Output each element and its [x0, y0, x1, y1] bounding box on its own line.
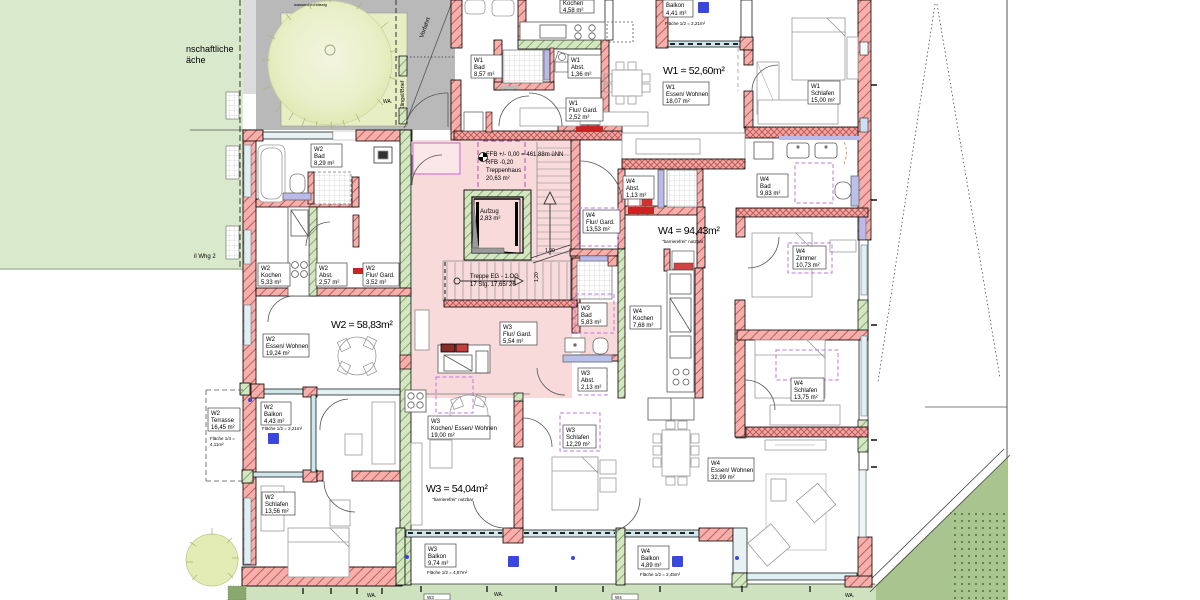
- svg-text:18,07 m²: 18,07 m²: [666, 99, 690, 105]
- svg-text:FFB +/- 0,00 = 461,88m üNN: FFB +/- 0,00 = 461,88m üNN: [486, 152, 563, 158]
- svg-text:äche: äche: [186, 55, 206, 65]
- svg-text:Bad: Bad: [314, 154, 325, 160]
- svg-text:Kochen/ Essen/ Wohnen: Kochen/ Essen/ Wohnen: [431, 426, 497, 432]
- svg-text:1,20: 1,20: [534, 272, 540, 282]
- svg-text:Balkon: Balkon: [428, 554, 446, 560]
- svg-text:Abst.: Abst.: [571, 65, 585, 71]
- svg-text:W2: W2: [265, 495, 275, 501]
- svg-text:W1: W1: [811, 84, 821, 90]
- svg-text:Balkon: Balkon: [666, 3, 684, 9]
- svg-text:W4: W4: [760, 177, 770, 183]
- svg-text:W4: W4: [586, 213, 596, 219]
- svg-text:WA.: WA.: [367, 593, 376, 599]
- svg-text:Schlafen: Schlafen: [566, 435, 589, 441]
- svg-text:2,83 m²: 2,83 m²: [480, 216, 500, 222]
- svg-text:4,58 m²: 4,58 m²: [563, 8, 583, 14]
- svg-text:Flur/ Gard.: Flur/ Gard.: [366, 273, 395, 279]
- svg-text:16,45 m²: 16,45 m²: [211, 425, 235, 431]
- svg-text:W2: W2: [366, 266, 376, 272]
- svg-text:W3: W3: [581, 306, 591, 312]
- svg-text:7,68 m²: 7,68 m²: [633, 323, 653, 329]
- svg-text:13,53 m²: 13,53 m²: [586, 227, 610, 233]
- svg-text:12,29 m²: 12,29 m²: [566, 442, 590, 448]
- svg-text:W1: W1: [571, 58, 581, 64]
- svg-text:Schlafen: Schlafen: [265, 502, 288, 508]
- svg-text:2,52 m²: 2,52 m²: [569, 115, 589, 121]
- svg-text:W1: W1: [666, 85, 676, 91]
- svg-text:Essen/ Wohnen: Essen/ Wohnen: [711, 468, 753, 474]
- svg-text:"barrierefrei" nutzbar: "barrierefrei" nutzbar: [432, 497, 474, 502]
- svg-text:WA.: WA.: [494, 592, 503, 598]
- svg-text:W2: W2: [266, 337, 276, 343]
- svg-text:Kochen: Kochen: [563, 1, 583, 7]
- svg-text:Abst.: Abst.: [581, 378, 595, 384]
- svg-text:W3: W3: [431, 419, 441, 425]
- svg-text:4,89 m²: 4,89 m²: [641, 563, 661, 569]
- svg-text:W2: W2: [261, 266, 271, 272]
- svg-text:W4: W4: [641, 549, 651, 555]
- svg-text:10,73 m²: 10,73 m²: [796, 263, 820, 269]
- svg-text:Schlafen: Schlafen: [811, 91, 834, 97]
- svg-text:1,13 m²: 1,13 m²: [626, 193, 646, 199]
- svg-text:Bad: Bad: [760, 184, 771, 190]
- svg-text:Flur/ Gard.: Flur/ Gard.: [569, 108, 598, 114]
- svg-text:Treppenhaus: Treppenhaus: [486, 168, 521, 174]
- svg-text:5,54 m²: 5,54 m²: [503, 339, 523, 345]
- svg-text:W4: W4: [794, 381, 804, 387]
- svg-text:W4 = 94,43m²: W4 = 94,43m²: [658, 225, 720, 237]
- svg-text:W4: W4: [711, 461, 721, 467]
- svg-text:W4: W4: [615, 595, 622, 600]
- svg-text:W3 = 54,04m²: W3 = 54,04m²: [426, 483, 488, 495]
- svg-text:W3: W3: [566, 428, 576, 434]
- svg-text:Bad: Bad: [581, 313, 592, 319]
- svg-text:Terrasse: Terrasse: [211, 418, 235, 424]
- svg-text:2,13 m²: 2,13 m²: [581, 385, 601, 391]
- svg-text:Fläche 1/2 = 2,45m²: Fläche 1/2 = 2,45m²: [640, 572, 681, 577]
- svg-text:9,74 m²: 9,74 m²: [428, 561, 448, 567]
- svg-text:Kochen: Kochen: [633, 316, 653, 322]
- svg-text:8,29 m²: 8,29 m²: [314, 161, 334, 167]
- svg-text:W3: W3: [427, 595, 434, 600]
- svg-text:W3: W3: [428, 547, 438, 553]
- svg-text:4,11m²: 4,11m²: [210, 442, 224, 447]
- svg-text:Flur/ Gard.: Flur/ Gard.: [586, 220, 615, 226]
- svg-text:W1 = 52,60m²: W1 = 52,60m²: [663, 65, 725, 77]
- svg-text:1,36 m²: 1,36 m²: [571, 72, 591, 78]
- svg-text:4,43 m²: 4,43 m²: [264, 419, 284, 425]
- svg-text:W4: W4: [626, 179, 636, 185]
- svg-text:13,56 m²: 13,56 m²: [265, 509, 289, 515]
- svg-text:5,33 m²: 5,33 m²: [261, 280, 281, 286]
- svg-text:W2 = 58,83m²: W2 = 58,83m²: [331, 319, 393, 331]
- svg-text:Essen/ Wohnen: Essen/ Wohnen: [266, 344, 308, 350]
- svg-text:Bad: Bad: [474, 65, 485, 71]
- svg-text:9,83 m²: 9,83 m²: [760, 191, 780, 197]
- svg-text:RFB -0,20: RFB -0,20: [486, 160, 514, 166]
- svg-text:Klingel/Brief: Klingel/Brief: [400, 80, 406, 110]
- svg-text:W1: W1: [569, 101, 579, 107]
- svg-text:Abst.: Abst.: [319, 273, 333, 279]
- svg-text:Schlafen: Schlafen: [794, 388, 817, 394]
- svg-text:"barrierefrei" nutzbar: "barrierefrei" nutzbar: [662, 239, 704, 244]
- svg-text:Fläche 1/2 = 2,21m²: Fläche 1/2 = 2,21m²: [665, 21, 706, 26]
- svg-text:Treppe EG - 1.OG: Treppe EG - 1.OG: [470, 274, 519, 280]
- svg-text:wasserdurchlässig: wasserdurchlässig: [294, 2, 327, 7]
- svg-text:Balkon: Balkon: [264, 412, 282, 418]
- svg-text:17 Stg. 17,65/ 26: 17 Stg. 17,65/ 26: [470, 282, 516, 288]
- svg-text:Zimmer: Zimmer: [796, 256, 816, 262]
- svg-text:WA.: WA.: [383, 99, 392, 105]
- svg-text:8,57 m²: 8,57 m²: [474, 72, 494, 78]
- svg-text:Flur/ Gard.: Flur/ Gard.: [503, 332, 532, 338]
- svg-text:Abst.: Abst.: [626, 186, 640, 192]
- svg-text:Fläche 1/2 = 4,87m²: Fläche 1/2 = 4,87m²: [427, 570, 468, 575]
- svg-text:4,41 m²: 4,41 m²: [666, 11, 686, 17]
- svg-text:19,24 m²: 19,24 m²: [266, 351, 290, 357]
- svg-text:W2: W2: [319, 266, 329, 272]
- svg-text:W1: W1: [474, 58, 484, 64]
- svg-text:15,00 m²: 15,00 m²: [811, 98, 835, 104]
- svg-text:Essen/ Wohnen: Essen/ Wohnen: [666, 92, 708, 98]
- svg-text:W3: W3: [581, 371, 591, 377]
- svg-text:W2: W2: [314, 147, 324, 153]
- svg-text:W3: W3: [503, 325, 513, 331]
- svg-text:W4: W4: [796, 249, 806, 255]
- svg-text:WA.: WA.: [845, 593, 854, 599]
- svg-text:il Whg 2: il Whg 2: [194, 254, 216, 260]
- svg-text:5,83 m²: 5,83 m²: [581, 320, 601, 326]
- svg-text:Fläche 1/4 =: Fläche 1/4 =: [210, 436, 235, 441]
- svg-text:W4: W4: [633, 309, 643, 315]
- svg-text:2,57 m²: 2,57 m²: [319, 280, 339, 286]
- svg-text:Fläche 1/2 = 2,21m²: Fläche 1/2 = 2,21m²: [262, 426, 303, 431]
- svg-text:Kochen: Kochen: [261, 273, 281, 279]
- svg-text:20,63 m²: 20,63 m²: [486, 176, 510, 182]
- svg-text:nschaftliche: nschaftliche: [186, 44, 234, 54]
- svg-text:W2: W2: [211, 411, 221, 417]
- svg-text:Balkon: Balkon: [641, 556, 659, 562]
- svg-text:W2: W2: [264, 405, 274, 411]
- svg-text:3,52 m²: 3,52 m²: [366, 280, 386, 286]
- svg-text:Aufzug: Aufzug: [480, 209, 499, 215]
- svg-text:13,75 m²: 13,75 m²: [794, 395, 818, 401]
- svg-text:32,99 m²: 32,99 m²: [711, 475, 735, 481]
- svg-text:1,90: 1,90: [545, 248, 555, 254]
- svg-text:19,00 m²: 19,00 m²: [431, 433, 455, 439]
